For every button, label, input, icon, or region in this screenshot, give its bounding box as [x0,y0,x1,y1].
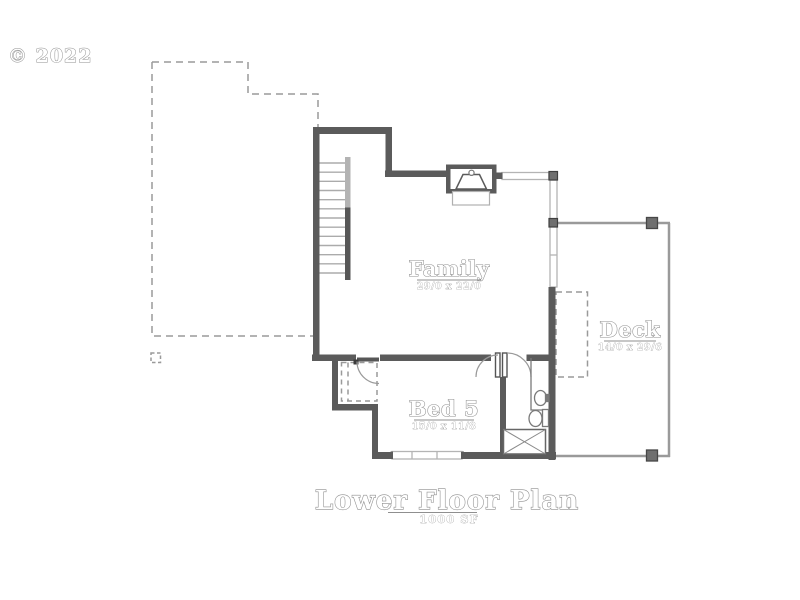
bath-door-leaf-left [496,353,501,377]
room-label-family: Family [409,256,490,281]
label-group: © 2022 Family 29/0 x 22/0 Deck 14/0 x 29… [8,45,662,526]
room-dims-deck: 14/0 x 29/6 [598,342,662,353]
window-bed5 [392,452,462,460]
fireplace [446,165,497,206]
plan-area: 1000 SF [419,512,478,526]
fireplace-hearth [453,192,490,206]
toilet-bowl [529,411,542,427]
toilet-tank [543,410,549,427]
deck-overhang-dashed [556,292,588,377]
south-wall-1 [372,452,393,459]
room-label-deck: Deck [600,317,661,342]
floor-plan-canvas: © 2022 Family 29/0 x 22/0 Deck 14/0 x 29… [0,0,800,600]
deck-post-top [647,218,658,229]
floor-plan-svg: © 2022 Family 29/0 x 22/0 Deck 14/0 x 29… [0,0,800,600]
upper-outline-dashed-group [151,62,588,401]
stair-stringer-lower [345,208,351,281]
window-corner-post [549,172,558,181]
bed5-step-wall [332,404,378,411]
closet-door-swing-arc [357,362,379,384]
bath-fixture-group [504,358,550,454]
wall-stub-fireplace [497,173,503,180]
bed5-west-wall [332,355,338,411]
bed5-lower-west-wall [372,404,378,459]
copyright-text: © 2022 [8,45,93,67]
fireplace-vent-icon [469,170,474,175]
bed5-north-wall-2 [380,355,491,362]
room-dims-family: 29/0 x 22/0 [417,281,481,292]
closet-door-leaf [357,358,379,362]
exterior-wall-top [385,171,446,178]
window-corner-post [549,219,558,228]
exterior-wall-top-left [313,127,392,134]
deck-post-bottom [647,450,658,461]
stair-stringer-upper [345,157,351,208]
exterior-wall-right [549,287,556,460]
upper-outline-dashed-left [152,62,313,336]
room-dims-bed5: 15/0 x 11/8 [412,421,476,432]
room-label-bed5: Bed 5 [409,396,479,421]
closet-door-hinge [354,360,359,365]
sink [535,391,547,406]
exterior-wall-step [386,127,393,177]
exterior-wall-left [313,127,320,361]
window-top [502,173,549,180]
window-right-vertical [550,180,557,287]
post-below-dashed [151,353,161,363]
upper-outline-dashed-top [152,62,318,127]
sink-faucet-icon [546,395,550,402]
stair-group [319,163,346,273]
bath-door-leaf-right [503,353,508,377]
